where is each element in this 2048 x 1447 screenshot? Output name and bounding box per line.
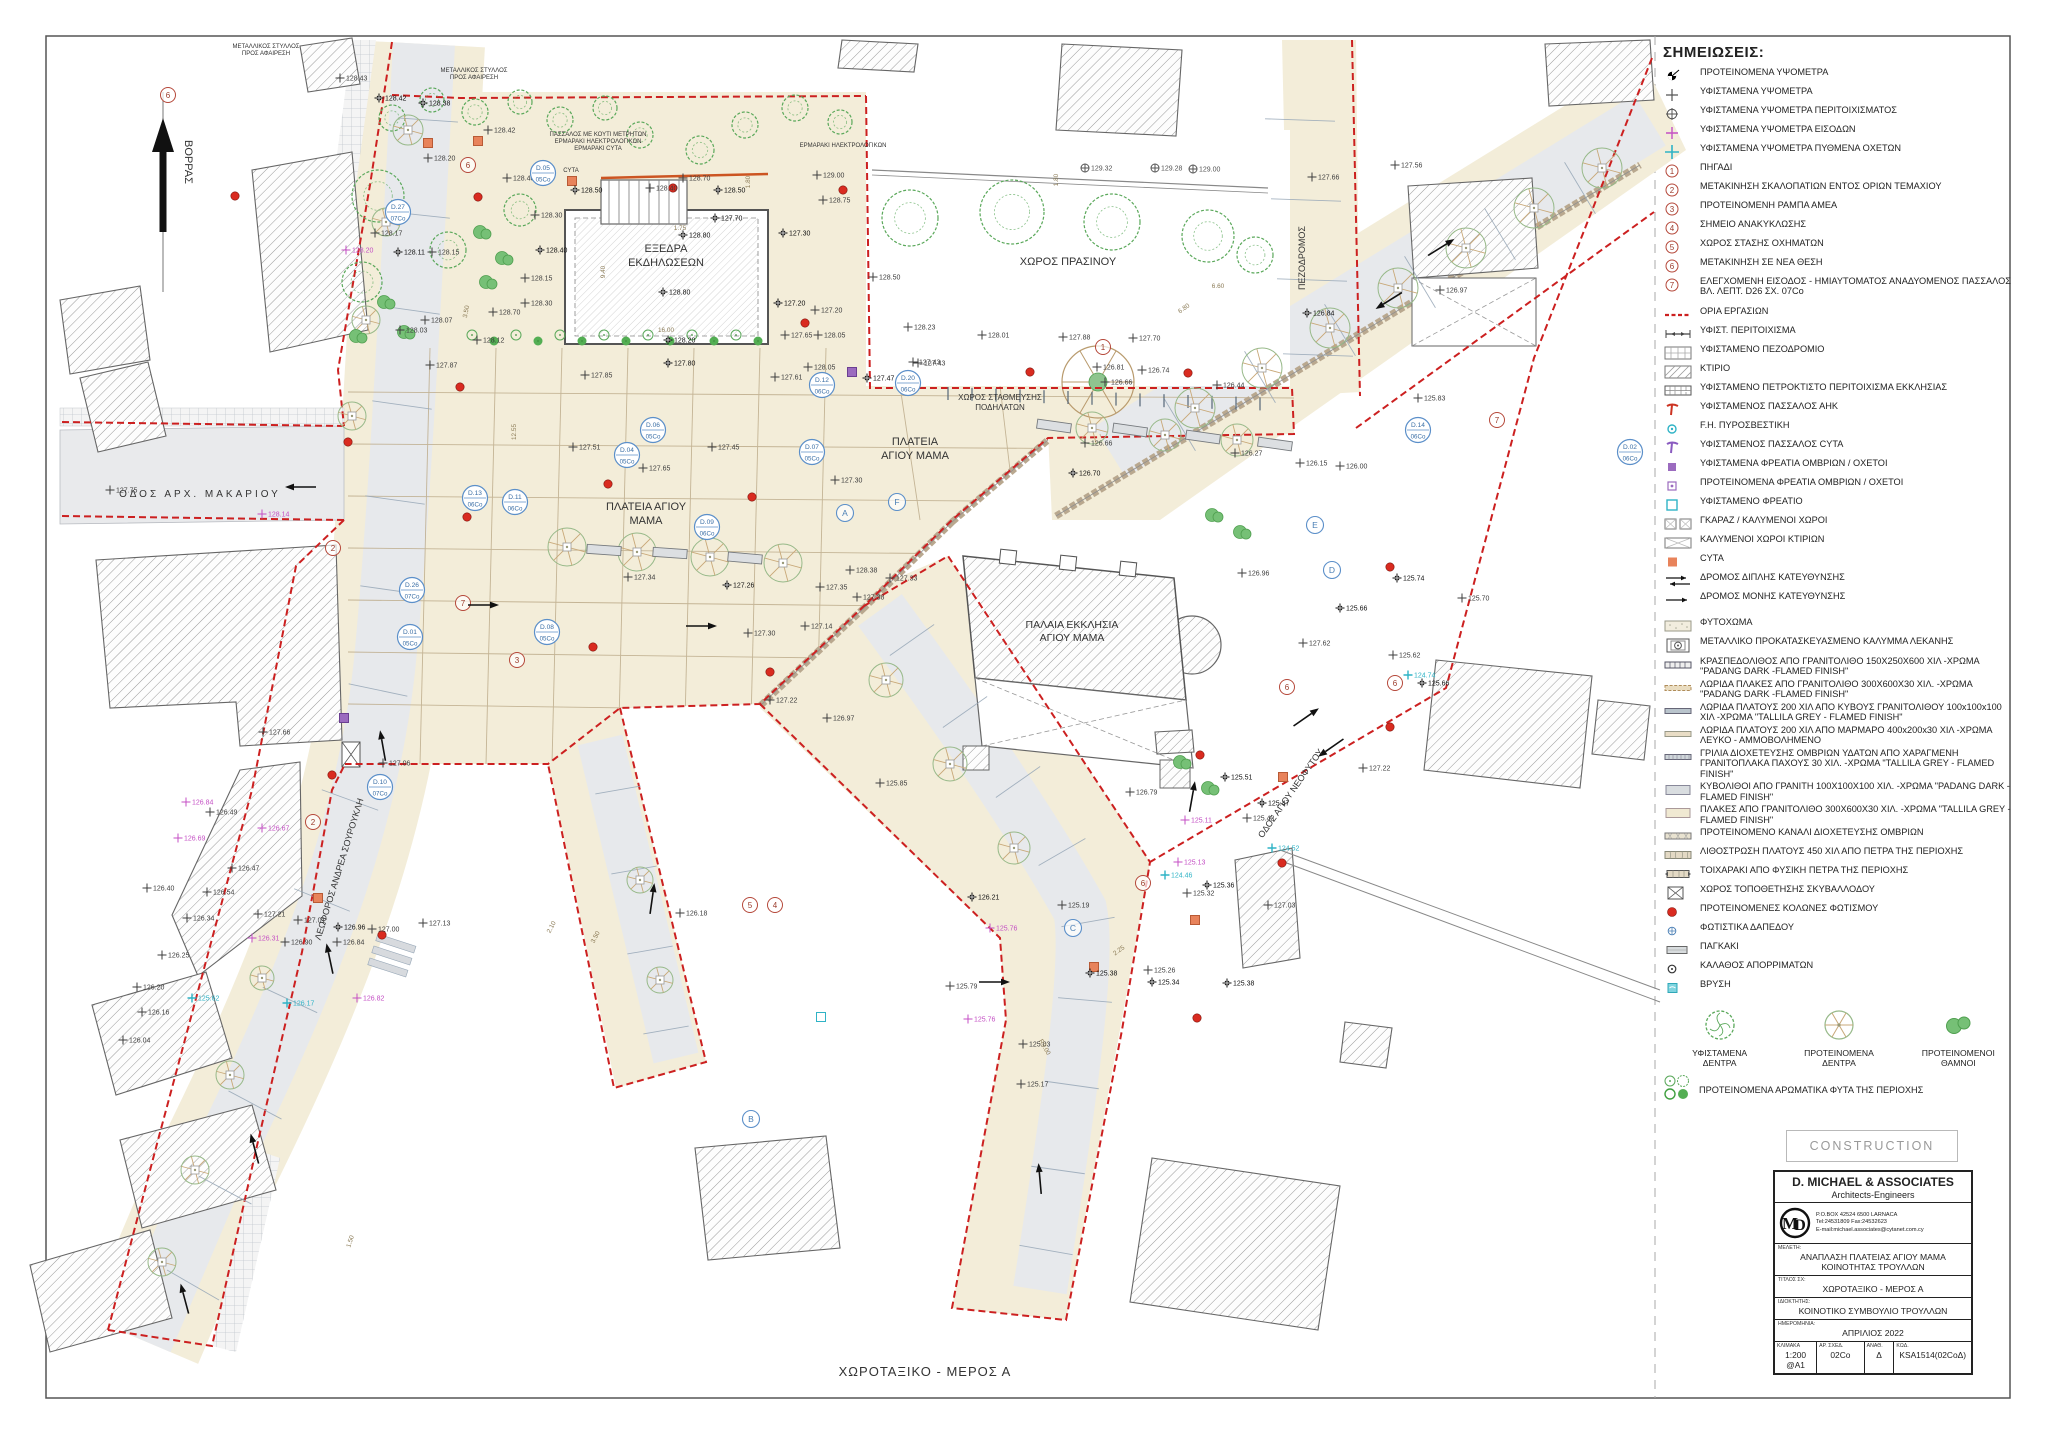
legend-symbol-grille	[1663, 748, 1695, 765]
dimension-text: 12.55	[511, 424, 518, 440]
svg-text:6: 6	[1141, 879, 1146, 888]
svg-text:2: 2	[331, 544, 336, 553]
tree-ar	[578, 337, 587, 346]
svg-text:126.47: 126.47	[238, 866, 260, 873]
svg-text:B: B	[748, 1114, 754, 1124]
note-number: 6	[461, 158, 476, 173]
svg-text:126.81: 126.81	[1103, 365, 1125, 372]
svg-text:126.97: 126.97	[833, 716, 855, 723]
legend-item-label: ΟΡΙΑ ΕΡΓΑΣΙΩΝ	[1700, 306, 1768, 316]
legend-item: ΛΩΡΙΔΑ ΠΛΑΚΕΣ ΑΠΟ ΓΡΑΝΙΤΟΛΙΘΟ 300X600X30…	[1663, 679, 2015, 700]
detail-bubble: D.1007Co	[368, 775, 393, 800]
svg-text:126.17: 126.17	[293, 1001, 315, 1008]
svg-text:124.52: 124.52	[1278, 846, 1300, 853]
legend-symbol-dashred	[1663, 306, 1695, 323]
svg-text:126.21: 126.21	[978, 895, 1000, 902]
legend-symbol-sqp	[1663, 458, 1695, 475]
legend-item: ΚΥΒΟΛΙΘΟΙ ΑΠΟ ΓΡΑΝΙΤΗ 100X100X100 ΧΙΛ. -…	[1663, 781, 2015, 802]
spot-elevation: 127.80	[664, 359, 696, 368]
spot-elevation: 128.03	[396, 326, 428, 335]
svg-text:3: 3	[1670, 205, 1675, 214]
section-letter: D	[1324, 562, 1341, 579]
svg-text:125.13: 125.13	[1184, 860, 1206, 867]
spot-elevation: 128.38	[846, 566, 878, 575]
legend-item: ΠΑΓΚΑΚΙ	[1663, 941, 2015, 958]
spot-elevation: 124.46	[1161, 871, 1193, 880]
legend-item: ΥΦΙΣΤΑΜΕΝΟ ΠΕΤΡΟΚΤΙΣΤΟ ΠΕΡΙΤΟΙΧΙΣΜΑ ΕΚΚΛ…	[1663, 382, 2015, 399]
note-number: 2	[306, 815, 321, 830]
svg-text:05Co: 05Co	[646, 434, 661, 441]
svg-text:06Co: 06Co	[508, 506, 523, 513]
bench	[587, 544, 622, 555]
svg-text:E: E	[1312, 520, 1318, 530]
svg-text:126.90: 126.90	[291, 940, 313, 947]
svg-text:125.38: 125.38	[1096, 971, 1118, 978]
spot-elevation: 128.01	[978, 331, 1010, 340]
svg-text:128.70: 128.70	[499, 310, 521, 317]
spot-elevation: 127.34	[624, 573, 656, 582]
legend-item-label: ΛΩΡΙΔΑ ΠΛΑΤΟΥΣ 200 ΧΙΛ ΑΠΟ ΜΑΡΜΑΡΟ 400x2…	[1700, 725, 2015, 746]
spot-elevation: 128.80	[659, 288, 691, 297]
spot-elevation: 125.34	[1148, 978, 1180, 987]
legend-item-label: ΜΕΤΑΚΙΝΗΣΗ ΣΚΑΛΟΠΑΤΙΩΝ ΕΝΤΟΣ ΟΡΙΩΝ ΤΕΜΑΧ…	[1700, 181, 1941, 191]
legend-item: ΥΦΙΣΤΑΜΕΝΑ ΥΨΟΜΕΤΡΑ ΠΥΘΜΕΝΑ ΟΧΕΤΩΝ	[1663, 143, 2015, 160]
svg-text:6: 6	[166, 91, 171, 100]
spot-elevation: 128.30	[531, 211, 563, 220]
note-number: 4	[768, 898, 783, 913]
svg-text:06Co: 06Co	[901, 387, 916, 394]
plan-label: ΒΟΡΡΑΣ	[182, 140, 194, 184]
spot-elevation: 128.14	[258, 510, 290, 519]
svg-text:05Co: 05Co	[536, 177, 551, 184]
legend-symbol-curb	[1663, 656, 1695, 673]
svg-text:125.83: 125.83	[1424, 396, 1446, 403]
svg-text:127.87: 127.87	[436, 363, 458, 370]
legend-item-label: ΠΑΓΚΑΚΙ	[1700, 941, 1739, 951]
legend-item-label: ΧΩΡΟΣ ΣΤΑΣΗΣ ΟΧΗΜΑΤΩΝ	[1700, 238, 1824, 248]
spot-elevation: 124.74	[1404, 671, 1436, 680]
spot-elevation: 128.15	[521, 274, 553, 283]
spot-elevation: 127.43	[909, 358, 941, 367]
spot-elevation: 127.22	[766, 696, 798, 705]
legend-panel: ΣΗΜΕΙΩΣΕΙΣ: ΠΡΟΤΕΙΝΟΜΕΝΑ ΥΨΟΜΕΤΡΑΥΦΙΣΤΑΜ…	[1663, 44, 2015, 1106]
svg-text:4: 4	[773, 901, 778, 910]
firm-name: D. MICHAEL & ASSOCIATES	[1777, 1175, 1969, 1189]
legend-item-label: ΥΦΙΣΤΑΜΕΝΟ ΠΕΖΟΔΡΟΜΙΟ	[1700, 344, 1824, 354]
svg-text:125.74: 125.74	[1403, 576, 1425, 583]
svg-text:7: 7	[1495, 416, 1500, 425]
svg-text:07Co: 07Co	[405, 594, 420, 601]
svg-text:128.42: 128.42	[385, 96, 407, 103]
svg-text:D.14: D.14	[1411, 422, 1425, 429]
legend-item: ΠΡΟΤΕΙΝΟΜΕΝΑ ΥΨΟΜΕΤΡΑ	[1663, 67, 2015, 84]
legend-symbol-circ: 6	[1663, 257, 1695, 274]
spot-elevation: 125.76	[964, 1015, 996, 1024]
plan-label: ΜΕΤΑΛΛΙΚΟΣ ΣΤΥΛΛΟΣΠΡΟΣ ΑΦΑΙΡΕΣΗ	[441, 68, 508, 81]
svg-text:F: F	[894, 497, 899, 507]
legend-item: ΓΡΙΛΙΑ ΔΙΟΧΕΤΕΥΣΗΣ ΟΜΒΡΙΩΝ ΥΔΑΤΩΝ ΑΠΟ ΧΑ…	[1663, 748, 2015, 779]
svg-text:127.34: 127.34	[634, 575, 656, 582]
spot-elevation: 125.70	[1458, 594, 1490, 603]
note-number: 7	[1490, 413, 1505, 428]
spot-elevation: 125.85	[876, 779, 908, 788]
svg-text:128.07: 128.07	[431, 318, 453, 325]
svg-text:125.66: 125.66	[1346, 606, 1368, 613]
legend-symbol-fh	[1663, 420, 1695, 437]
legend-item-label: ΛΩΡΙΔΑ ΠΛΑΚΕΣ ΑΠΟ ΓΡΑΝΙΤΟΛΙΘΟ 300X600X30…	[1700, 679, 2015, 700]
svg-text:129.32: 129.32	[1091, 166, 1113, 173]
svg-text:06Co: 06Co	[1623, 456, 1638, 463]
spot-elevation: 127.14	[801, 622, 833, 631]
svg-text:125.76: 125.76	[974, 1017, 996, 1024]
svg-text:128.38: 128.38	[856, 568, 878, 575]
legend-item: ΥΦΙΣΤΑΜΕΝΟ ΠΕΖΟΔΡΟΜΙΟ	[1663, 344, 2015, 361]
legend-item-label: ΥΦΙΣΤΑΜΕΝΟΣ ΠΑΣΣΑΛΟΣ ΑΗΚ	[1700, 401, 1838, 411]
spot-elevation: 126.69	[174, 834, 206, 843]
spot-elevation: 126.67	[258, 824, 290, 833]
spot-elevation: 128.40	[503, 174, 535, 183]
spot-elevation: 128.30	[521, 299, 553, 308]
light-pole	[328, 771, 336, 779]
title-block: D. MICHAEL & ASSOCIATES Architects-Engin…	[1773, 1170, 1973, 1375]
spot-elevation: 127.47	[863, 374, 895, 383]
svg-text:125.36: 125.36	[1213, 883, 1235, 890]
spot-elevation: 126.40	[143, 884, 175, 893]
spot-elevation: 125.62	[1389, 651, 1421, 660]
spot-elevation: 127.20	[811, 306, 843, 315]
svg-text:D.11: D.11	[508, 494, 522, 501]
svg-text:125.76: 125.76	[996, 926, 1018, 933]
svg-text:126.74: 126.74	[1148, 368, 1170, 375]
legend-symbol-skip	[1663, 884, 1695, 901]
light-pole	[1026, 368, 1034, 376]
legend-item: ΚΑΛΑΘΟΣ ΑΠΟΡΡΙΜΑΤΩΝ	[1663, 960, 2015, 977]
utility-box	[314, 894, 323, 903]
svg-text:124.46: 124.46	[1171, 873, 1193, 880]
legend-item-label: ΛΙΘΟΣΤΡΩΣΗ ΠΛΑΤΟΥΣ 450 ΧΙΛ ΑΠΟ ΠΕΤΡΑ ΤΗΣ…	[1700, 846, 1963, 856]
legend-symbol-stone450	[1663, 846, 1695, 863]
svg-text:127.88: 127.88	[1069, 335, 1091, 342]
spot-elevation: 126.04	[119, 1036, 151, 1045]
svg-text:128.11: 128.11	[404, 250, 425, 257]
light-pole	[748, 493, 756, 501]
svg-text:127.70: 127.70	[1139, 336, 1161, 343]
svg-text:126.67: 126.67	[268, 826, 290, 833]
legend-item: ΥΦΙΣΤΑΜΕΝΟΣ ΠΑΣΣΑΛΟΣ ΑΗΚ	[1663, 401, 2015, 418]
detail-bubble: D.1306Co	[463, 486, 488, 511]
spot-elevation: 128.20	[342, 246, 374, 255]
detail-bubble: D.0405Co	[615, 443, 640, 468]
note-number: 1	[1096, 340, 1111, 355]
spot-elevation: 127.45	[708, 443, 740, 452]
legend-item: 3ΠΡΟΤΕΙΝΟΜΕΝΗ ΡΑΜΠΑ ΑΜΕΑ	[1663, 200, 2015, 217]
firm-address: P.O.BOX 42524 6500 LARNACA Tel:24531809 …	[1816, 1212, 1924, 1235]
legend-item: ΔΡΟΜΟΣ ΔΙΠΛΗΣ ΚΑΤΕΥΘΥΝΣΗΣ	[1663, 572, 2015, 589]
spot-elevation: 129.00	[1189, 165, 1221, 174]
spot-elevation: 127.51	[569, 443, 601, 452]
spot-elevation: 126.97	[1436, 286, 1468, 295]
svg-text:128.75: 128.75	[829, 198, 851, 205]
svg-text:128.40: 128.40	[656, 186, 678, 193]
legend-item: ΥΦΙΣΤΑΜΕΝΑ ΥΨΟΜΕΤΡΑ ΠΕΡΙΤΟΙΧΙΣΜΑΤΟΣ	[1663, 105, 2015, 122]
legend-item-label: ΥΦΙΣΤΑΜΕΝΑ ΥΨΟΜΕΤΡΑ ΕΙΣΟΔΩΝ	[1700, 124, 1856, 134]
legend-item: ΜΕΤΑΛΛΙΚΟ ΠΡΟΚΑΤΑΣΚΕΥΑΣΜΕΝΟ ΚΑΛΥΜΜΑ ΛΕΚΑ…	[1663, 636, 2015, 654]
svg-text:129.00: 129.00	[1199, 167, 1221, 174]
svg-text:128.38: 128.38	[429, 101, 451, 108]
legend-symbol-hatch	[1663, 363, 1695, 380]
svg-text:06Co: 06Co	[815, 389, 830, 396]
spot-elevation: 126.84	[182, 798, 214, 807]
svg-text:D: D	[1794, 1217, 1806, 1234]
spot-elevation: 125.62	[188, 994, 220, 1003]
spot-elevation: 126.21	[968, 893, 1000, 902]
spot-elevation: 128.15	[428, 248, 460, 257]
svg-text:05Co: 05Co	[403, 641, 418, 648]
legend-item-label: ΥΦΙΣΤΑΜΕΝΟ ΠΕΤΡΟΚΤΙΣΤΟ ΠΕΡΙΤΟΙΧΙΣΜΑ ΕΚΚΛ…	[1700, 382, 1947, 392]
legend-symbol-flight	[1663, 922, 1695, 939]
spot-elevation: 128.40	[536, 246, 568, 255]
note-number: 2	[326, 541, 341, 556]
svg-text:6: 6	[466, 161, 471, 170]
spot-elevation: 125.51	[1221, 773, 1253, 782]
legend-item-label: ΕΛΕΓΧΟΜΕΝΗ ΕΙΣΟΔΟΣ - ΗΜΙΑΥΤΟΜΑΤΟΣ ΑΝΑΔΥΟ…	[1700, 276, 2015, 297]
legend-symbol-arr1	[1663, 591, 1695, 608]
legend-item: ΤΟΙΧΑΡΑΚΙ ΑΠΟ ΦΥΣΙΚΗ ΠΕΤΡΑ ΤΗΣ ΠΕΡΙΟΧΗΣ	[1663, 865, 2015, 882]
legend-symbol-channel	[1663, 827, 1695, 844]
svg-text:128.15: 128.15	[531, 276, 553, 283]
svg-text:127.22: 127.22	[776, 698, 798, 705]
svg-text:126.20: 126.20	[143, 985, 165, 992]
spot-elevation: 126.00	[1336, 462, 1368, 471]
svg-text:128.03: 128.03	[406, 328, 428, 335]
svg-text:125.70: 125.70	[1468, 596, 1490, 603]
svg-text:127.47: 127.47	[873, 376, 895, 383]
drawing-sheet: 128.43128.42128.38128.42128.20128.17128.…	[0, 0, 2048, 1447]
spot-elevation: 126.20	[133, 983, 165, 992]
legend-symbol-bin	[1663, 960, 1695, 977]
legend-item-label: ΛΩΡΙΔΑ ΠΛΑΤΟΥΣ 200 ΧΙΛ ΑΠΟ ΚΥΒΟΥΣ ΓΡΑΝΙΤ…	[1700, 702, 2015, 723]
svg-text:126.34: 126.34	[193, 916, 215, 923]
spot-elevation: 127.30	[779, 229, 811, 238]
legend-symbol-soil	[1663, 617, 1695, 634]
legend-tree-type: ΥΦΙΣΤΑΜΕΝΑΔΕΝΤΡΑ	[1663, 1008, 1776, 1068]
legend-item-label: ΓΡΙΛΙΑ ΔΙΟΧΕΤΕΥΣΗΣ ΟΜΒΡΙΩΝ ΥΔΑΤΩΝ ΑΠΟ ΧΑ…	[1700, 748, 2015, 779]
legend-symbol-fountain	[1663, 979, 1695, 996]
svg-text:D.01: D.01	[403, 629, 417, 636]
spot-elevation: 128.20	[424, 154, 456, 163]
spot-elevation: 125.66	[1336, 604, 1368, 613]
spot-elevation: 129.32	[1081, 164, 1113, 173]
spot-elevation: 126.97	[823, 714, 855, 723]
cell-scale: ΚΛΙΜΑΚΑ 1:200 @A1	[1775, 1342, 1817, 1373]
legend-item: ΠΛΑΚΕΣ ΑΠΟ ΓΡΑΝΙΤΟΛΙΘΟ 300X600X30 ΧΙΛ. -…	[1663, 804, 2015, 825]
plan-label: ΕΡΜΑΡΑΚΙ ΗΛΕΚΤΡΟΛΟΓΙΚΩΝ	[800, 143, 887, 149]
spot-elevation: 125.83	[1414, 394, 1446, 403]
svg-text:05Co: 05Co	[805, 456, 820, 463]
svg-text:6: 6	[1670, 262, 1675, 271]
svg-text:D.05: D.05	[536, 165, 550, 172]
svg-text:2: 2	[1670, 186, 1675, 195]
light-pole	[1196, 751, 1204, 759]
light-pole	[463, 513, 471, 521]
spot-elevation: 128.43	[336, 74, 368, 83]
legend-item-label: ΠΗΓΑΔΙ	[1700, 162, 1732, 172]
svg-text:4: 4	[1670, 224, 1675, 233]
legend-symbol-aromatic	[1663, 1074, 1691, 1106]
svg-text:C: C	[1070, 923, 1076, 933]
svg-text:127.33: 127.33	[896, 576, 918, 583]
svg-text:1: 1	[1670, 167, 1675, 176]
dimension-text: 9.40	[600, 265, 607, 278]
spot-elevation: 126.66	[1081, 439, 1113, 448]
spot-elevation: 127.30	[831, 476, 863, 485]
legend-symbol-stonewall	[1663, 382, 1695, 399]
legend-symbol-strip1	[1663, 679, 1695, 696]
svg-text:127.38: 127.38	[863, 595, 885, 602]
svg-text:126.16: 126.16	[148, 1010, 170, 1017]
svg-text:D.26: D.26	[405, 582, 419, 589]
svg-text:126.49: 126.49	[216, 810, 238, 817]
cell-revision: ΑΝΑΘ. Δ	[1865, 1342, 1895, 1373]
legend-items: ΠΡΟΤΕΙΝΟΜΕΝΑ ΥΨΟΜΕΤΡΑΥΦΙΣΤΑΜΕΝΑ ΥΨΟΜΕΤΡΑ…	[1663, 67, 2015, 996]
svg-text:127.70: 127.70	[721, 216, 743, 223]
svg-text:5: 5	[748, 901, 753, 910]
legend-item: ΛΩΡΙΔΑ ΠΛΑΤΟΥΣ 200 ΧΙΛ ΑΠΟ ΜΑΡΜΑΡΟ 400x2…	[1663, 725, 2015, 746]
legend-symbol-circ: 2	[1663, 181, 1695, 198]
note-number: 6	[161, 88, 176, 103]
spot-elevation: 126.27	[1231, 449, 1263, 458]
svg-text:129.28: 129.28	[1161, 166, 1183, 173]
spot-elevation: 126.44	[1213, 381, 1245, 390]
legend-item: CYTA	[1663, 553, 2015, 570]
spot-elevation: 128.05	[804, 363, 836, 372]
svg-text:07Co: 07Co	[391, 216, 406, 223]
svg-text:128.23: 128.23	[914, 325, 936, 332]
svg-text:127.61: 127.61	[781, 375, 803, 382]
utility-box	[340, 714, 349, 723]
svg-text:127.30: 127.30	[789, 231, 811, 238]
spot-elevation: 125.32	[1183, 889, 1215, 898]
svg-text:D.10: D.10	[373, 779, 387, 786]
light-pole	[474, 193, 482, 201]
spot-elevation: 127.61	[771, 373, 803, 382]
firm-logo: M D	[1778, 1206, 1812, 1240]
legend-item-label: ΚΑΛΥΜΕΝΟΙ ΧΩΡΟΙ ΚΤΙΡΙΩΝ	[1700, 534, 1824, 544]
svg-text:1: 1	[1101, 343, 1106, 352]
legend-symbol-circ: 3	[1663, 200, 1695, 217]
svg-text:127.26: 127.26	[733, 583, 755, 590]
svg-text:06Co: 06Co	[468, 502, 483, 509]
legend-item-label: ΠΛΑΚΕΣ ΑΠΟ ΓΡΑΝΙΤΟΛΙΘΟ 300X600X30 ΧΙΛ. -…	[1700, 804, 2015, 825]
dimension-text: 1.80	[745, 175, 752, 188]
firm-role: Architects-Engineers	[1777, 1190, 1969, 1200]
spot-elevation: 125.36	[1203, 881, 1235, 890]
legend-item-label: ΚΑΛΑΘΟΣ ΑΠΟΡΡΙΜΑΤΩΝ	[1700, 960, 1813, 970]
spot-elevation: 127.70	[711, 214, 743, 223]
legend-item: ΓΚΑΡΑΖ / ΚΑΛΥΜΕΝΟΙ ΧΩΡΟΙ	[1663, 515, 2015, 532]
spot-elevation: 128.38	[419, 99, 451, 108]
legend-item-label: ΚΤΙΡΙΟ	[1700, 363, 1730, 373]
legend-symbol-circ: 4	[1663, 219, 1695, 236]
utility-box	[424, 139, 433, 148]
utility-box	[1191, 916, 1200, 925]
svg-text:125.11: 125.11	[1191, 818, 1212, 825]
legend-symbol-slab	[1663, 804, 1695, 821]
cell-drawing-no: ΑΡ. ΣΧΕΔ. 02Co	[1817, 1342, 1864, 1373]
legend-item-label: ΥΦΙΣΤΑΜΕΝΑ ΥΨΟΜΕΤΡΑ ΠΕΡΙΤΟΙΧΙΣΜΑΤΟΣ	[1700, 105, 1897, 115]
detail-bubble: D.2006Co	[896, 371, 921, 396]
legend-symbol-cube	[1663, 781, 1695, 798]
light-pole	[1386, 563, 1394, 571]
spot-elevation: 128.50	[869, 273, 901, 282]
legend-symbol-mag	[1663, 124, 1695, 141]
svg-text:127.06: 127.06	[389, 761, 411, 768]
spot-elevation: 126.79	[1126, 788, 1158, 797]
light-pole	[589, 643, 597, 651]
detail-bubble: D.2607Co	[400, 578, 425, 603]
detail-bubble: D.1206Co	[810, 373, 835, 398]
legend-item: ΟΡΙΑ ΕΡΓΑΣΙΩΝ	[1663, 306, 2015, 323]
legend-symbol-grid	[1663, 344, 1695, 361]
legend-item: ΛΙΘΟΣΤΡΩΣΗ ΠΛΑΤΟΥΣ 450 ΧΙΛ ΑΠΟ ΠΕΤΡΑ ΤΗΣ…	[1663, 846, 2015, 863]
spot-elevation: 127.20	[774, 299, 806, 308]
svg-text:128.70: 128.70	[689, 176, 711, 183]
spot-elevation: 127.03	[1264, 901, 1296, 910]
spot-elevation: 127.62	[1299, 639, 1331, 648]
spot-elevation: 128.12	[473, 336, 505, 345]
light-pole	[456, 383, 464, 391]
legend-aromatic: ΠΡΟΤΕΙΝΟΜΕΝΑ ΑΡΩΜΑΤΙΚΑ ΦΥΤΑ ΤΗΣ ΠΕΡΙΟΧΗΣ	[1663, 1074, 2015, 1106]
legend-symbol-perim	[1663, 105, 1695, 122]
legend-item-label: ΓΚΑΡΑΖ / ΚΑΛΥΜΕΝΟΙ ΧΩΡΟΙ	[1700, 515, 1828, 525]
svg-text:128.14: 128.14	[268, 512, 290, 519]
svg-text:126.15: 126.15	[1306, 461, 1328, 468]
spot-elevation: 126.18	[676, 909, 708, 918]
dimension-text: 6.60	[1212, 283, 1225, 290]
svg-text:125.34: 125.34	[1158, 980, 1180, 987]
svg-text:128.12: 128.12	[483, 338, 505, 345]
svg-text:127.30: 127.30	[754, 631, 776, 638]
spot-elevation: 127.88	[1059, 333, 1091, 342]
svg-text:07Co: 07Co	[373, 791, 388, 798]
legend-aromatic-label: ΠΡΟΤΕΙΝΟΜΕΝΑ ΑΡΩΜΑΤΙΚΑ ΦΥΤΑ ΤΗΣ ΠΕΡΙΟΧΗΣ	[1699, 1085, 1923, 1095]
svg-text:124.74: 124.74	[1414, 673, 1436, 680]
legend-item-label: ΠΡΟΤΕΙΝΟΜΕΝΑ ΦΡΕΑΤΙΑ ΟΜΒΡΙΩΝ / ΟΧΕΤΟΙ	[1700, 477, 1903, 487]
svg-text:128.43: 128.43	[346, 76, 368, 83]
dimension-text: 16.00	[658, 327, 674, 334]
plan-label: ΧΩΡΟΤΑΞΙΚΟ - ΜΕΡΟΣ Α	[839, 1364, 1012, 1379]
svg-text:125.32: 125.32	[1193, 891, 1215, 898]
legend-item: ΦΥΤΟΧΩΜΑ	[1663, 617, 2015, 634]
spot-elevation: 127.21	[254, 910, 286, 919]
spot-elevation: 125.26	[1144, 966, 1176, 975]
svg-text:126.27: 126.27	[1241, 451, 1263, 458]
svg-text:125.62: 125.62	[198, 996, 220, 1003]
spot-elevation: 125.17	[1017, 1080, 1049, 1089]
note-number: 3	[510, 653, 525, 668]
spot-elevation: 126.47	[228, 864, 260, 873]
legend-symbol-basin	[1663, 636, 1695, 654]
detail-bubble: D.0505Co	[531, 161, 556, 186]
spot-elevation: 127.13	[419, 919, 451, 928]
spot-elevation: 128.40	[646, 184, 678, 193]
spot-elevation: 125.13	[1174, 858, 1206, 867]
construction-stamp: CONSTRUCTION	[1786, 1130, 1958, 1162]
legend-item: ΚΑΛΥΜΕΝΟΙ ΧΩΡΟΙ ΚΤΙΡΙΩΝ	[1663, 534, 2015, 551]
legend-symbol-sqpo	[1663, 477, 1695, 494]
svg-text:126.00: 126.00	[1346, 464, 1368, 471]
svg-text:127.56: 127.56	[1401, 163, 1423, 170]
